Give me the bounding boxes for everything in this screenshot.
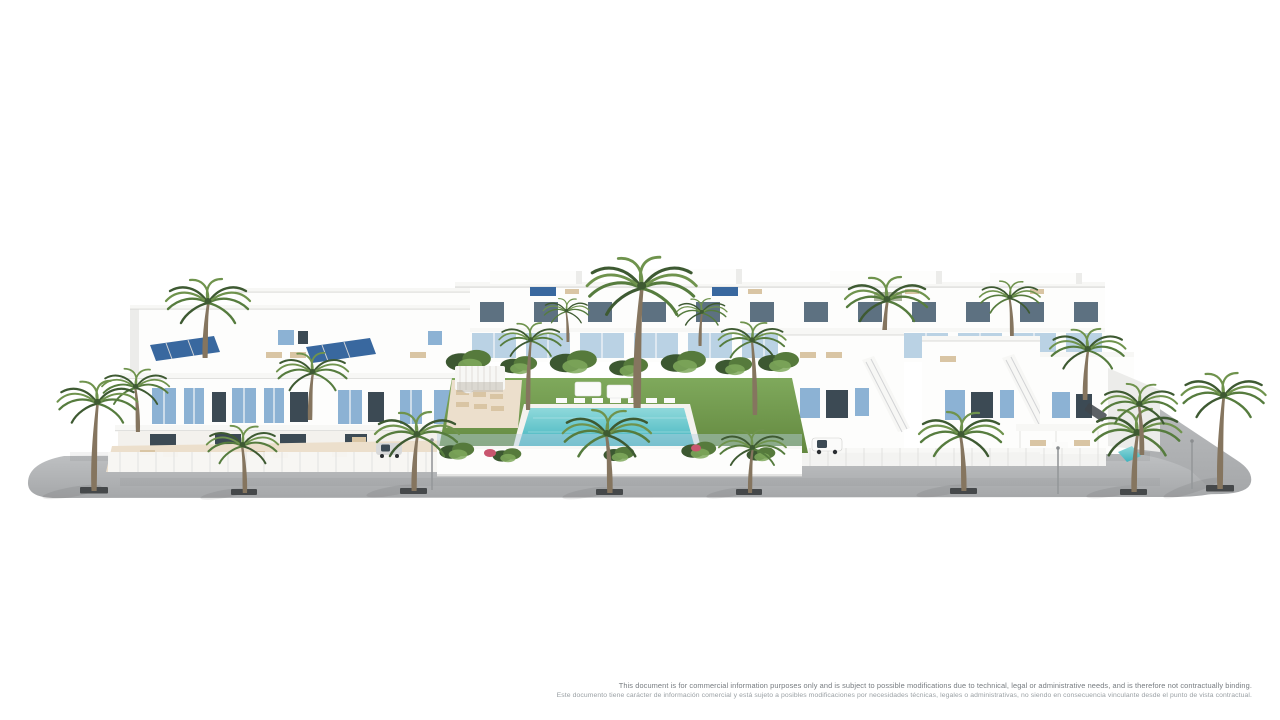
- shutter-panels: [152, 388, 450, 424]
- render-page: This document is for commercial informat…: [0, 0, 1280, 720]
- render-canvas: [0, 0, 1280, 720]
- disclaimer: This document is for commercial informat…: [557, 681, 1252, 701]
- disclaimer-line-en: This document is for commercial informat…: [557, 681, 1252, 691]
- road-shading: [120, 478, 1160, 486]
- villa-b: [922, 336, 1050, 452]
- pergola-roof: [1016, 424, 1102, 431]
- disclaimer-line-es: Este documento tiene carácter de informa…: [557, 691, 1252, 701]
- front-fence: [108, 452, 474, 472]
- flower-bush: [484, 449, 496, 457]
- flower-bush: [691, 445, 701, 452]
